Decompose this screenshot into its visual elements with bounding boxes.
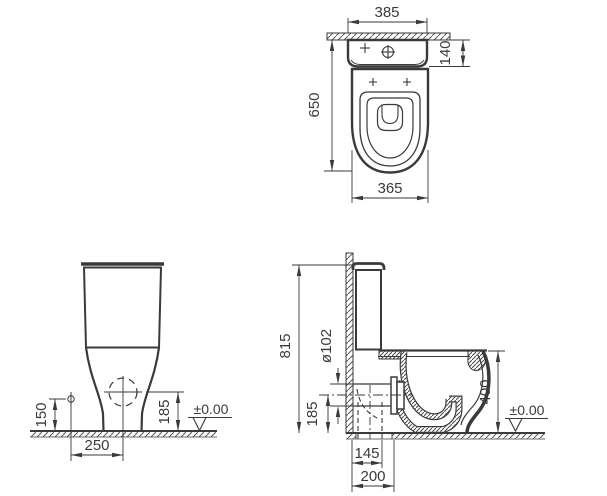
arrowhead: [71, 453, 82, 457]
side-floor-level-label: ±0.00: [510, 402, 545, 418]
plan-dim-140-label: 140: [437, 40, 454, 65]
side-view: 815 ø102 185 400: [277, 253, 548, 492]
front-cistern-body: [84, 268, 161, 348]
front-pedestal-left: [86, 348, 104, 432]
arrowhead: [176, 392, 180, 403]
plan-dim-385-label: 385: [374, 4, 399, 21]
side-dim-200-label: 200: [360, 468, 385, 485]
plan-dim-365-label: 365: [377, 180, 402, 197]
arrowhead: [330, 160, 334, 171]
plan-bowl-outline: [352, 69, 428, 173]
front-view: 150 185 250 ±0.00: [30, 264, 232, 461]
side-dim-outlet-axis-height: [326, 395, 330, 433]
technical-drawing-page: 385 140: [0, 0, 607, 496]
front-dim-185-label: 185: [156, 399, 173, 424]
front-inlet-marker: [68, 392, 74, 406]
arrowhead: [330, 40, 334, 51]
side-bowl-section-wall: [397, 352, 459, 430]
arrowhead: [461, 40, 465, 51]
front-floor-level-symbol: [188, 418, 232, 431]
arrowhead: [53, 420, 57, 431]
arrowhead: [336, 373, 340, 384]
arrowhead: [297, 422, 301, 433]
plan-view: 385 140: [306, 4, 470, 203]
arrowhead: [336, 406, 340, 417]
arrowhead: [297, 265, 301, 276]
side-dim-815-label: 815: [277, 333, 294, 358]
front-dim-150-label: 150: [33, 402, 50, 427]
side-vertical-outlet-hidden: [357, 385, 382, 439]
arrowhead: [176, 420, 180, 431]
arrowhead: [496, 422, 500, 433]
arrowhead: [326, 395, 330, 406]
arrowhead: [348, 20, 359, 24]
wc-dimension-drawing: 385 140: [0, 0, 607, 496]
side-dim-400-label: 400: [477, 379, 494, 404]
side-floor-level-symbol: [505, 419, 548, 432]
side-dim-145-label: 145: [354, 445, 379, 462]
arrowhead: [461, 56, 465, 67]
side-dim-102-label: ø102: [318, 329, 335, 363]
front-floor-level-label: ±0.00: [194, 401, 229, 417]
side-dim-185-label: 185: [304, 401, 321, 426]
arrowhead: [352, 196, 363, 200]
arrowhead: [112, 453, 123, 457]
arrowhead: [326, 422, 330, 433]
front-outlet-axis-symbol: [104, 376, 142, 461]
side-outlet-pipe: [319, 377, 413, 414]
side-floor-section: [346, 433, 545, 439]
arrowhead: [417, 196, 428, 200]
arrowhead: [53, 399, 57, 410]
front-dim-inlet-height: [49, 399, 66, 431]
arrowhead: [416, 20, 427, 24]
arrowhead: [496, 351, 500, 362]
plan-dim-650-label: 650: [306, 92, 323, 117]
front-dim-250-label: 250: [84, 437, 109, 454]
side-cistern-body: [356, 270, 381, 350]
